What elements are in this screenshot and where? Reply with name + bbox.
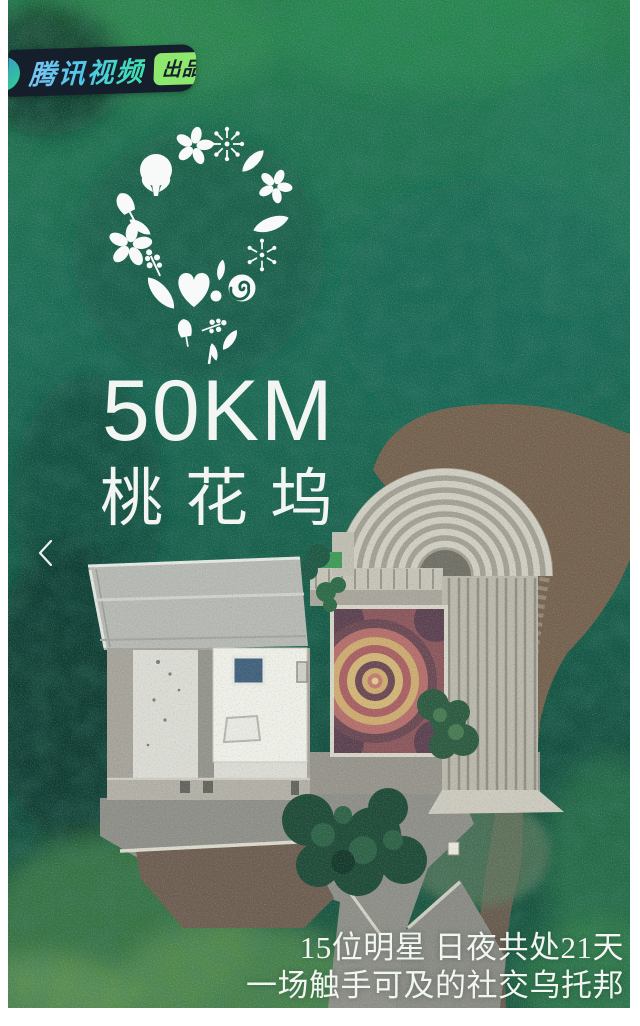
poster-photo[interactable]: 腾讯视频 出品 — [8, 0, 630, 1008]
publisher-brand-label: 腾讯视频 — [28, 50, 145, 93]
tencent-video-logo-icon — [8, 57, 21, 92]
show-title-name: 桃花坞 — [100, 448, 355, 539]
tagline-line2: 一场触手可及的社交乌托邦 — [246, 967, 624, 1005]
chevron-left-icon — [32, 537, 60, 571]
show-title-km: 50KM — [102, 362, 335, 461]
publisher-chip-label: 出品 — [153, 51, 196, 85]
tagline: 15位明星 日夜共处21天 一场触手可及的社交乌托邦 — [246, 929, 624, 1005]
floral-pin-logo — [90, 124, 305, 369]
tagline-line1: 15位明星 日夜共处21天 — [246, 929, 624, 967]
publisher-badge: 腾讯视频 出品 — [8, 44, 197, 97]
carousel-prev-button[interactable] — [30, 536, 62, 574]
